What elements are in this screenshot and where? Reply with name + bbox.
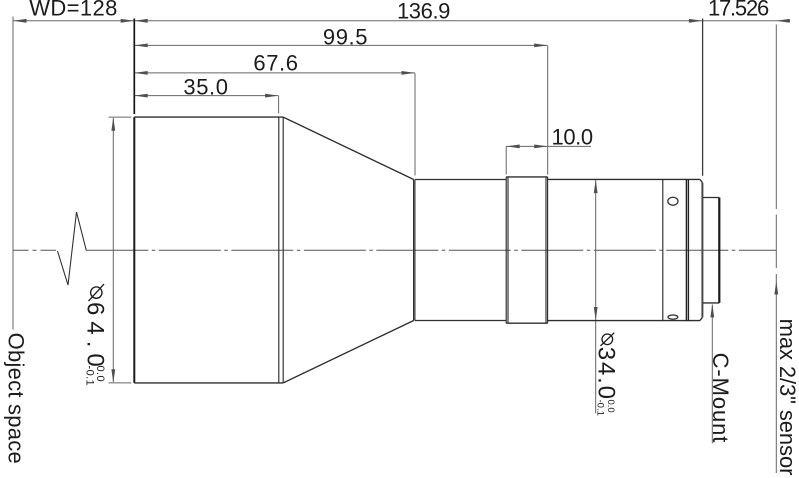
svg-text:136.9: 136.9 xyxy=(397,0,450,24)
svg-text:35.0: 35.0 xyxy=(183,74,228,99)
svg-text:Object space: Object space xyxy=(3,333,28,464)
svg-text:-0.1: -0.1 xyxy=(84,366,96,387)
svg-text:-0.1: -0.1 xyxy=(594,400,605,416)
svg-text:34.0: 34.0 xyxy=(593,347,620,401)
svg-text:64.0: 64.0 xyxy=(81,302,108,373)
svg-text:99.5: 99.5 xyxy=(323,24,368,49)
svg-text:max 2/3" sensor: max 2/3" sensor xyxy=(775,319,799,476)
svg-text:0.0: 0.0 xyxy=(605,400,616,413)
svg-text:17.526: 17.526 xyxy=(708,0,769,21)
svg-text:WD=128: WD=128 xyxy=(29,0,118,21)
svg-text:67.6: 67.6 xyxy=(253,50,298,75)
svg-text:C-Mount: C-Mount xyxy=(708,353,733,444)
svg-text:10.0: 10.0 xyxy=(552,125,593,150)
